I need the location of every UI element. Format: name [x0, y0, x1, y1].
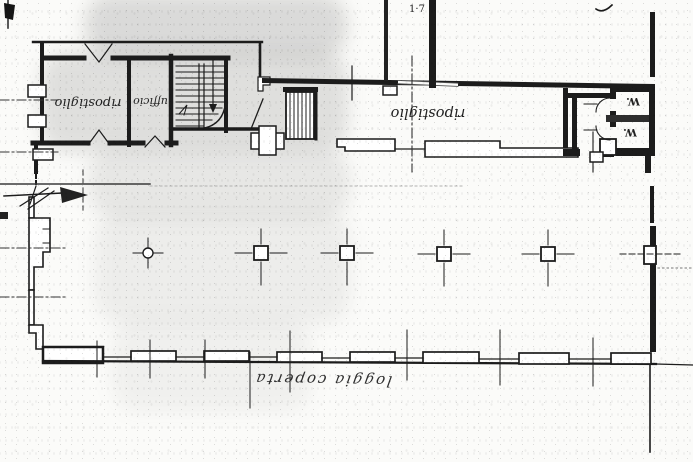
scan-edge-marks — [0, 0, 692, 268]
main-staircase — [174, 58, 262, 131]
corridor-walls — [262, 0, 655, 172]
plan-drawing — [0, 0, 693, 462]
loggia-columns — [133, 229, 574, 286]
vestibule-and-small-stair — [251, 77, 318, 155]
loggia-walls — [0, 170, 682, 452]
north-arrow-scribble — [4, 186, 88, 209]
loggia-bottom-wall — [43, 330, 693, 408]
scanned-floor-plan-page: ripostiglio ufficio ripostiglio W. W. lo… — [0, 0, 693, 462]
